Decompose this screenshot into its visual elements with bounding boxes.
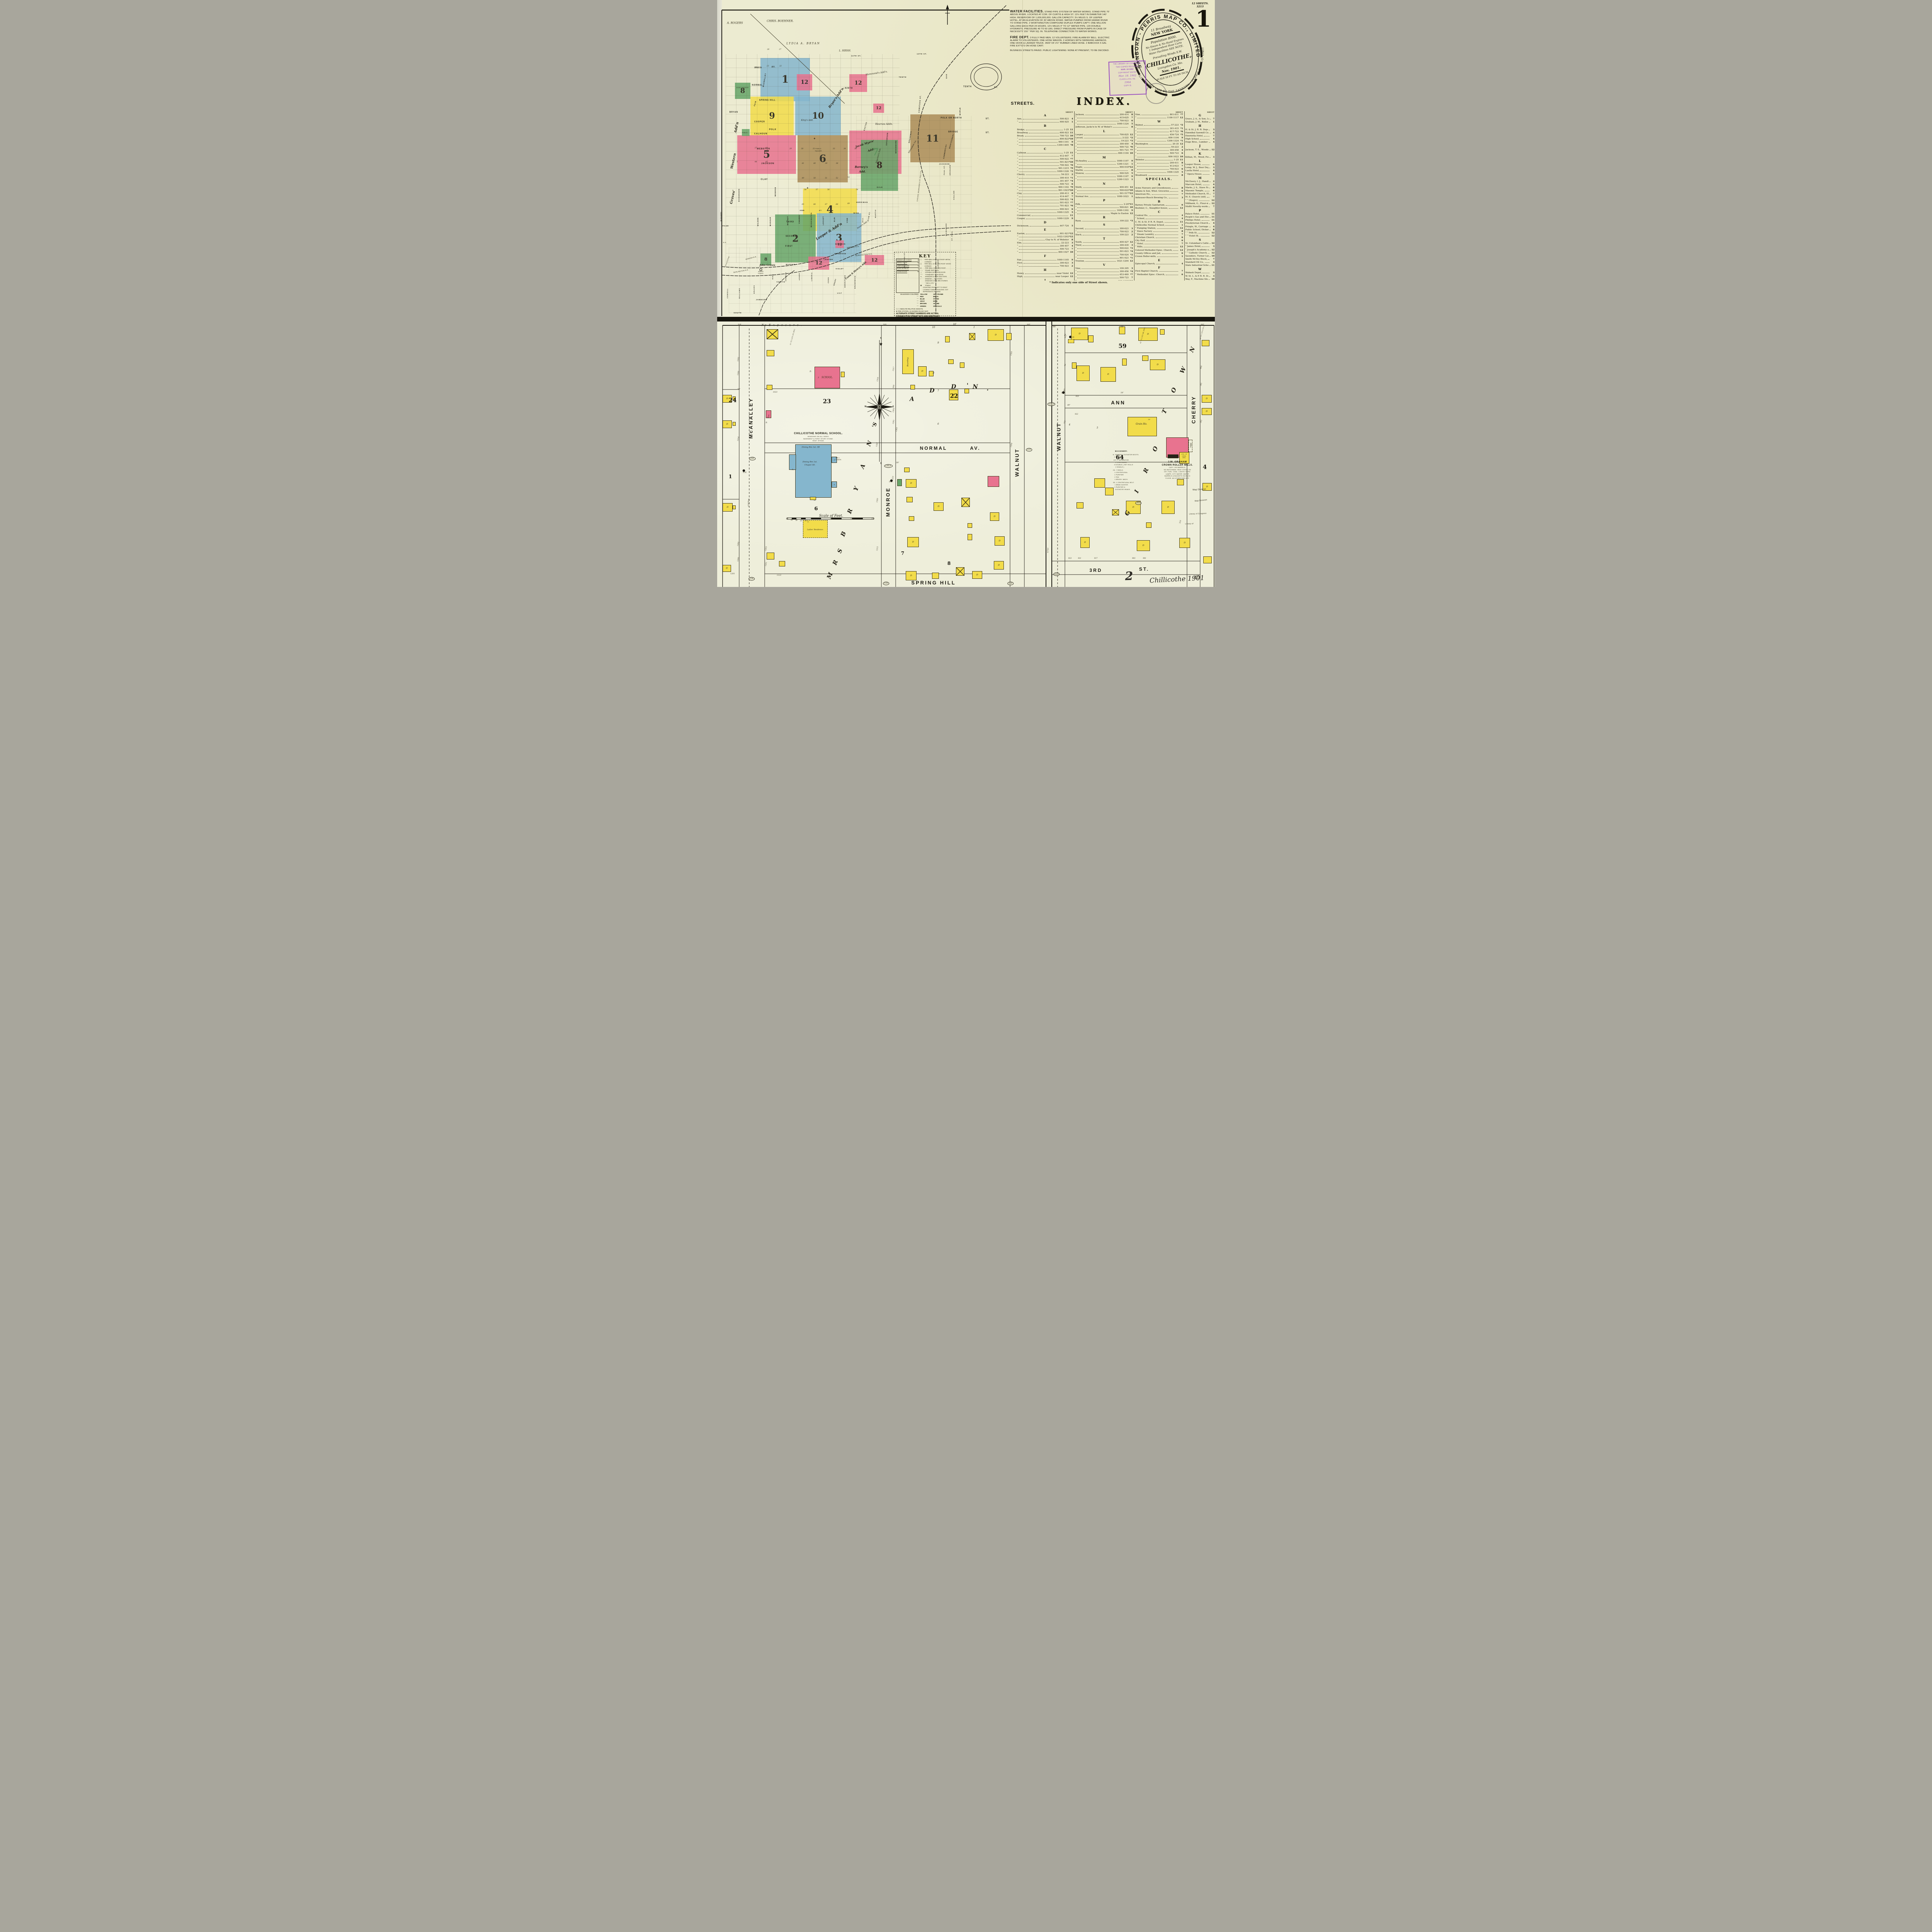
building-label: D — [1157, 364, 1158, 366]
index-entry-range: 800-1104 — [1168, 136, 1179, 139]
building — [841, 372, 845, 377]
index-entry-name: “ — [1075, 276, 1077, 279]
index-entry-name: “ — [1017, 155, 1018, 158]
index-entry-sheet: 7 — [1179, 233, 1183, 236]
index-entry: “1100-111712 — [1135, 116, 1183, 119]
index-entry-leader — [1150, 143, 1172, 145]
index-entry-range: 300-458 — [1170, 149, 1179, 152]
index-entry-sheet: 6 — [1069, 183, 1073, 186]
index-entry-leader — [1026, 217, 1056, 219]
index-entry-sheet: 8 — [1179, 230, 1183, 233]
index-entry-sheet: 6 — [1179, 236, 1183, 239]
building-d: D — [994, 561, 1004, 570]
keymap-label: 41 — [802, 163, 804, 165]
index-entry-leader — [1202, 219, 1209, 221]
keymap-label: ELM — [834, 217, 835, 222]
keymap-label: Add. — [859, 170, 866, 173]
index-entry-leader — [1027, 151, 1063, 153]
index-entry-range: 400-451 — [1120, 186, 1129, 189]
index-entry-sheet: 12 — [1179, 143, 1183, 146]
sheet-label: 20' — [737, 389, 740, 391]
index-entry: Webster,1-2511 — [1135, 158, 1183, 162]
index-entry-range: 1200-1323 — [1117, 178, 1128, 181]
sheet-label: 6 — [937, 423, 939, 425]
keymap-label: 56 — [827, 189, 830, 191]
building-label: D — [1079, 333, 1080, 335]
keymap-label: PUBLIC — [742, 132, 748, 133]
building-label: D — [1206, 410, 1207, 413]
index-entry-name: Marks, J. S., Stave Factory, — [1185, 186, 1209, 189]
index-entry: “1309-1405*8 — [1017, 144, 1073, 147]
keymap-label: TOWER. — [758, 273, 764, 275]
keymap-label: PUBLIC — [815, 148, 821, 150]
index-entry: Tenth,400-42712 — [1075, 241, 1133, 244]
index-entry-range: 1-25 — [1174, 158, 1179, 162]
index-entry-sheet: 12 — [1210, 199, 1214, 202]
index-entry-leader — [1023, 192, 1059, 194]
index-entry-name: “ — [1075, 152, 1077, 155]
keymap-label: A. ROGERS — [727, 22, 743, 25]
index-entry-name: “ — [1135, 133, 1136, 136]
index-entry-leader — [1137, 162, 1169, 163]
index-entry-sheet: *12 — [1069, 232, 1073, 235]
index-entry-leader — [1173, 249, 1178, 251]
index-entry-sheet: 4 — [1179, 217, 1183, 220]
building — [932, 573, 939, 579]
index-entry-leader — [1085, 227, 1119, 229]
index-entry-sheet: 7 — [1210, 196, 1214, 199]
index-entry-leader — [1137, 127, 1169, 129]
index-entry-leader — [1144, 124, 1170, 126]
building-label: SCHOOL. — [821, 376, 833, 379]
keymap-label: 43 — [765, 162, 768, 163]
index-entry-range: 901-1215 — [1058, 167, 1069, 170]
sheet-label: AV. — [970, 446, 980, 451]
keymap-label: ST. — [819, 210, 823, 211]
index-entry-leader — [1165, 224, 1178, 226]
index-entry-sheet: 7 — [1210, 258, 1214, 261]
index-letter-header: M — [1075, 155, 1133, 160]
keymap-label: JAMESON — [756, 299, 767, 301]
index-entry-leader — [1077, 119, 1119, 121]
keymap-label: 58 — [804, 189, 806, 191]
index-entry-leader — [1209, 156, 1211, 158]
index-entry-sheet: *9 — [1069, 167, 1073, 170]
keymap-label: PAUL ST. — [944, 165, 945, 175]
index-entry-name: “ — [1135, 139, 1136, 143]
index-entry-name: “ — [1135, 152, 1136, 155]
index-entry: Colored Methodist Episc. Church,12 — [1135, 249, 1183, 252]
sheet-label: 4 — [1203, 464, 1207, 470]
keymap-label: ORCHARD — [949, 165, 951, 175]
keymap-label: 52 — [836, 178, 838, 180]
index-entry: Marcum Hotel,4 — [1185, 183, 1214, 186]
index-entry-name: High School, — [1185, 138, 1200, 141]
keymap-label: BRYAN — [730, 112, 738, 114]
sheet-label: 0 — [811, 519, 812, 520]
index-entry-range: 500-622 — [1120, 247, 1129, 250]
keymap-label: WILLIAMS — [739, 288, 740, 299]
index-entry-sheet: 11 — [1179, 221, 1183, 224]
sheet-label: 922 — [1075, 414, 1078, 416]
keymap-label: LIBERIA — [811, 272, 813, 281]
index-letter-header: S — [1075, 223, 1133, 227]
index-entry: First Baptist Church,7 — [1135, 270, 1183, 273]
building-d: D — [906, 479, 917, 488]
building — [909, 516, 914, 521]
index-entry: Way, F., Machine Shop,10 — [1185, 278, 1214, 281]
index-entry: “417-723*6 — [1135, 130, 1183, 133]
index-entry-leader — [1209, 222, 1210, 224]
index-entry-leader — [1019, 204, 1059, 206]
keymap-label: ANN — [800, 210, 805, 212]
index-entry: “700-922*6 — [1017, 164, 1073, 167]
index-entry-name: “ — [1135, 155, 1136, 158]
index-entry-sheet: 12 — [1179, 227, 1183, 230]
index-entry-name: Clay, — [1017, 192, 1022, 195]
index-entry-range: 1000-1326 — [1057, 170, 1069, 173]
index-entry-name: “ Stave Factory, — [1135, 230, 1153, 233]
index-entry: “415-6257 — [1075, 116, 1133, 119]
index-entry-name: “ — [1017, 189, 1018, 192]
sheet-label: Ladies' Residence. — [807, 529, 824, 531]
building — [969, 333, 975, 340]
index-entry-leader — [1137, 155, 1168, 157]
index-entry-range: 800-1104 — [1118, 152, 1129, 155]
index-entry-sheet: 7 — [1211, 192, 1214, 196]
index-entry: “801-1023*10 — [1017, 189, 1073, 192]
index-entry-range: 100-223 — [1120, 233, 1129, 236]
index-entry-leader — [1209, 180, 1211, 182]
index-entry-name: “ Steam Laundry, — [1135, 233, 1154, 236]
index-entry-range: 200-414 — [1120, 113, 1129, 116]
index-entry-range: 801-1023 — [1058, 189, 1069, 192]
index-entry-leader — [1137, 136, 1168, 138]
index-entry-sheet: *7 — [1069, 201, 1073, 204]
keymap-label: COWGILL — [727, 288, 728, 298]
index-entry-sheet: 12 — [1211, 202, 1214, 205]
index-entry-leader — [1209, 121, 1210, 122]
index-entry-range: 1000-1325 — [1167, 171, 1179, 174]
index-entry-range: 50-223 — [1171, 146, 1179, 149]
key-roof-label: NUMBER OF STORIES — [897, 259, 912, 262]
index-letter-header: J — [1017, 278, 1073, 281]
index-entry-sheet: 12 — [1211, 148, 1214, 151]
index-entry-sheet: 4 — [1179, 149, 1183, 152]
index-entry-name: Ryan, — [1075, 219, 1082, 223]
index-entry-range: 501-623 — [1060, 201, 1069, 204]
index-entry-leader — [1209, 228, 1211, 230]
index-entry-name: “ — [1017, 211, 1018, 214]
keymap-label: 40 — [813, 163, 816, 165]
index-entry-name: “ — [1075, 149, 1077, 152]
sheet-label: 1 FAN — [1114, 477, 1119, 478]
building-label: D — [1082, 372, 1084, 374]
index-entry-sheet: *6 — [1179, 130, 1183, 133]
sheet-label: 5 DOUBLE } SET ROLLS — [1114, 464, 1133, 466]
index-entry-name: Episcopal Church, — [1135, 262, 1155, 265]
index-entry-name: “ — [1017, 235, 1018, 238]
building-label: D — [910, 482, 912, 485]
index-entry-range: 200-413 — [1060, 192, 1069, 195]
index-entry-name: “ — [1075, 280, 1077, 281]
index-entry-name: Trenton, — [1075, 260, 1085, 263]
index-entry-leader — [1019, 238, 1045, 240]
index-entry: “700-9236 — [1075, 119, 1133, 122]
index-entry-leader — [1026, 232, 1059, 234]
index-entry: “1000-13255 — [1135, 171, 1183, 174]
index-entry-name: Saunders, Turner Lumber Co., — [1185, 255, 1209, 258]
index-entry-name: “ — [1075, 116, 1077, 119]
index-entry: Standard Oil Co.,3 — [1185, 261, 1214, 264]
index-entry-range: 100-222 — [1120, 219, 1129, 223]
keymap-label: TENTH — [899, 77, 906, 78]
index-letter-header: B — [1017, 124, 1073, 128]
index-entry-range: 2-24 — [1124, 203, 1129, 206]
index-entry-sheet: 2 — [1179, 146, 1183, 149]
keymap-label: POLK — [769, 129, 776, 131]
index-entry-sheet: 7 — [1069, 195, 1073, 198]
index-entry-sheet: 12 — [1179, 245, 1183, 248]
index-entry-leader — [1145, 242, 1178, 244]
index-entry: Boehner, C., Slaughter-house,12 — [1135, 207, 1183, 210]
index-entry: “ “ Catholic Church,12 — [1185, 252, 1214, 255]
index-entry-leader — [1208, 258, 1209, 260]
index-entry-name: Jefferson, Jacks'n to W. of Webst'r — [1075, 126, 1112, 129]
index-entry-sheet: 7 — [1129, 276, 1133, 279]
index-entry-sheet: 9 — [1179, 136, 1183, 139]
index-entry-sheet: 11 — [1211, 216, 1214, 219]
index-entry-sheet: 12 — [1179, 116, 1183, 119]
index-entry-name: “ — [1017, 201, 1018, 204]
sheet-label: Dining Rm 1st. 3B — [802, 447, 820, 449]
keymap-label: 13TH ST. — [917, 53, 927, 55]
index-entry-sheet: 3 — [1210, 245, 1214, 248]
index-entry-sheet: *4 — [1069, 198, 1073, 201]
index-entry-sheet: 3 — [1210, 271, 1214, 274]
index-entry-sheet: 4 — [1211, 222, 1214, 225]
index-entry-name: “ — [1017, 251, 1018, 254]
building-d: D — [995, 536, 1005, 546]
index-entry-range: 1000-1325 — [1057, 211, 1069, 214]
index-entry-leader — [1082, 219, 1119, 221]
keymap-label: Hearnes Addn. — [875, 123, 893, 126]
keymap-label: 51 — [825, 178, 827, 180]
index-entry-name: “ — [1017, 265, 1018, 268]
building-d: D — [1137, 540, 1150, 551]
index-entry-name: “ — [1017, 177, 1018, 180]
index-entry-name: “ — [1075, 122, 1077, 126]
sheet-label: Library of — [1185, 523, 1194, 525]
building-label: D — [938, 505, 939, 508]
sheet-label: 30 — [795, 520, 797, 521]
index-entry-sheet: 1 — [1129, 163, 1133, 166]
index-letter-header: W — [1135, 119, 1183, 124]
index-entry: H. & St. J. R. R. Depot,3 — [1185, 128, 1214, 131]
sheet-label: MACHINERY. — [1115, 451, 1128, 452]
index-entry-sheet: 5 — [1179, 171, 1183, 174]
keymap-label: WASHINGTON — [811, 213, 812, 228]
index-entry-leader — [1209, 216, 1211, 218]
index-letter-header: S — [1185, 238, 1214, 242]
index-entry-range: 501-723 — [1120, 149, 1129, 152]
keymap-label: LYDIA A. BRYAN — [786, 43, 820, 45]
keymap-label: SPRING HILL — [759, 100, 776, 102]
keymap-label: JACKSON — [761, 163, 774, 165]
keymap-label: LEEPER — [824, 259, 833, 261]
building — [1202, 340, 1209, 346]
index-entry-name: Acme Nursery and Greenhouses, — [1135, 187, 1172, 190]
keymap-label: SQUARE — [815, 151, 822, 152]
index-entry: “501-723*7 — [1075, 149, 1133, 152]
index-entry-name: W. St. L. & P. R. R. Depot, — [1185, 275, 1208, 278]
index-entry-range: 700-825 — [1120, 133, 1129, 136]
index-entry-sheet: 4 — [1179, 214, 1183, 217]
sheet-label: N — [973, 384, 978, 390]
index-entry-leader — [1137, 165, 1169, 167]
index-letter-header: R — [1075, 215, 1133, 219]
building-d: D — [1080, 537, 1090, 548]
sheet-label: 50 — [830, 519, 832, 520]
library-of-congress-stamp: THE LIBRARY OF CONGRESS, TWO COPIES RECE… — [1108, 60, 1146, 95]
index-entry-name: “ — [1017, 238, 1018, 241]
index-entry-leader — [1029, 131, 1059, 133]
sheet-label: 50' — [896, 462, 899, 464]
index-entry-name: “ — [1135, 168, 1136, 171]
index-entry: “800-102310 — [1135, 155, 1183, 158]
building — [1094, 478, 1105, 488]
index-entry: “ “ Polk St.,12 — [1185, 231, 1214, 235]
index-entry-name: “ — [1075, 209, 1077, 212]
keymap-label: 69 — [847, 203, 850, 205]
index-entry-name: “ — [1075, 192, 1077, 195]
index-entry-range: 800-1027 — [1058, 251, 1069, 254]
index-entry: Marks, J. S., Stave Factory,8 — [1185, 186, 1214, 189]
index-entry-sheet: 2 — [1129, 230, 1133, 233]
building — [1122, 359, 1127, 366]
index-entry-name: Central Ho., — [1135, 214, 1149, 217]
building-label: D — [922, 370, 923, 372]
index-entry-range: 301-415 — [1170, 127, 1179, 130]
sheet-label: 9 — [937, 342, 939, 344]
index-entry-name: Second, — [1075, 227, 1084, 230]
index-entry-name: State Industrial School for Girls, — [1185, 264, 1209, 267]
index-entry-leader — [1083, 233, 1119, 235]
index-entry-leader — [1090, 195, 1116, 197]
index-entry-leader — [1209, 275, 1210, 277]
index-entry-range: 500-821 — [1120, 206, 1129, 209]
key-symbol-row: COUNTING FROM LEFT TO RIGHT LOOKING TOWA… — [920, 286, 954, 293]
index-entry-leader — [1019, 158, 1059, 160]
index-entry: “ “ (Negro),12 — [1185, 199, 1214, 202]
keymap-label: SECOND — [786, 236, 796, 238]
index-entry-leader — [1169, 207, 1178, 209]
index-entry-leader — [1157, 227, 1178, 229]
keymap-label: R.R. — [723, 242, 726, 243]
index-entry-sheet: *1 — [1129, 257, 1133, 260]
index-entry-sheet: *7 — [1129, 273, 1133, 276]
index-entry: “301-457*4 — [1017, 180, 1073, 183]
building-label: D — [1107, 373, 1109, 376]
key-symbol-row: │FIRE WALL 6 IN. A'B'V ROOF. METAL CORNI… — [920, 259, 954, 263]
index-entry-leader — [1146, 239, 1178, 241]
index-entry-name: Normal Ave., — [1075, 195, 1090, 198]
index-entry-leader — [1209, 248, 1211, 250]
sheet-label: 50 — [786, 519, 788, 520]
building — [1112, 509, 1119, 515]
index-entry: Woodward,8 — [1135, 174, 1183, 177]
index-entry-name: Locust, — [1075, 136, 1083, 139]
index-entry-sheet: *6 — [1069, 164, 1073, 167]
index-entry-leader — [1077, 230, 1119, 232]
keymap-label: 50 — [813, 178, 816, 180]
building — [964, 389, 969, 393]
fire-dept-title: FIRE DEPT. — [1010, 35, 1029, 39]
index-entry-sheet: 11 — [1069, 151, 1073, 155]
key-wall-symbols: │FIRE WALL 6 IN. A'B'V ROOF. METAL CORNI… — [920, 259, 954, 293]
keymap-label: AV. — [772, 66, 776, 68]
index-entry-name: Crown Roller-mills, — [1135, 255, 1156, 258]
index-entry: Elm,22-2233 — [1017, 241, 1073, 245]
index-entry-leader — [1022, 259, 1056, 260]
index-entry-name: Masonic Temple, — [1185, 189, 1204, 192]
keymap-label: 24 — [755, 67, 757, 69]
building — [904, 468, 910, 472]
index-entry-sheet: 8 — [1179, 187, 1183, 190]
index-entry-sheet: 8 — [1069, 238, 1073, 241]
index-entry-name: “ — [1017, 121, 1018, 124]
index-entry-leader — [1144, 245, 1178, 247]
sheet-label: 16' — [1120, 326, 1124, 328]
index-entry: High,near Leeper12 — [1017, 275, 1073, 278]
index-entry-name: “ — [1075, 146, 1077, 149]
key-roof-symbol: ○ — [918, 268, 918, 270]
sheet-label: 3 — [1064, 364, 1066, 367]
sheet-label: 1 CORN BURR. — [1116, 462, 1128, 464]
index-entry: Vine,100-3053 — [1075, 267, 1133, 270]
building-label: D — [994, 515, 995, 518]
index-entry-range: 500-622 — [1120, 189, 1129, 192]
sheet-label: 1 CENTRIFUGAL. — [1114, 472, 1128, 474]
index-entry: “501-623*7 — [1017, 201, 1073, 204]
index-entry: M. E. Church (old),7 — [1185, 196, 1214, 199]
index-entry-name: Easton, — [1017, 232, 1025, 235]
index-entry-range: 300-456 — [1120, 270, 1129, 273]
sheet-label: CHILLICOTHE NORMAL SCHOOL. — [794, 432, 843, 435]
index-entry: “701-823*6 — [1017, 204, 1073, 207]
index-entry-sheet: *10 — [1129, 189, 1133, 192]
circled-number: 255' — [749, 457, 756, 461]
keymap-label: HERRIMAN — [856, 202, 868, 203]
index-entry-leader — [1166, 204, 1178, 206]
keymap-label: 49 — [802, 178, 804, 180]
index-entry-name: “ — [1135, 149, 1136, 152]
index-entry-leader — [1209, 255, 1211, 257]
building-label: D — [1133, 506, 1134, 509]
index-entry-range: 900-1101 — [1058, 141, 1069, 144]
index-entry-name: H. & St. J. R. R. Depot, — [1185, 128, 1208, 131]
index-entry-leader — [1019, 245, 1059, 247]
index-entry-leader — [1077, 146, 1119, 148]
building-d: D — [1100, 367, 1116, 382]
index-entry-sheet: *10 — [1069, 138, 1073, 141]
index-entry-leader — [1083, 241, 1119, 243]
index-entry-leader — [1137, 130, 1169, 132]
key-color-name: GREEN — [920, 305, 933, 308]
index-column-1: SHEETAAnn,500-8234“900-9251BBridge,1-251… — [1016, 111, 1073, 281]
index-entry-sheet: 8 — [1129, 169, 1133, 172]
index-entry-sheet: 3 — [1129, 267, 1133, 270]
